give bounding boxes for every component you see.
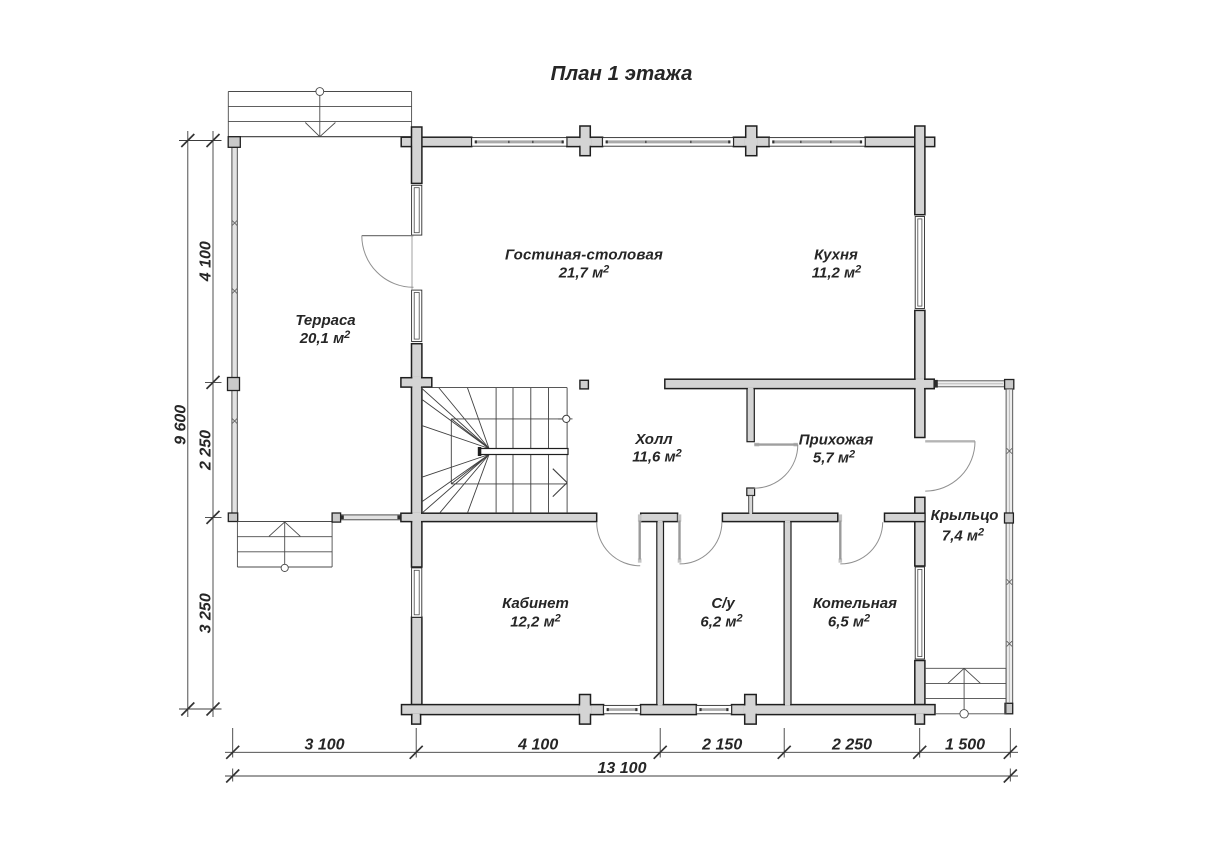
svg-text:12,2 м2: 12,2 м2: [510, 613, 561, 631]
svg-text:Крыльцо: Крыльцо: [931, 507, 999, 524]
svg-text:3 100: 3 100: [304, 737, 344, 754]
svg-text:4 100: 4 100: [197, 241, 214, 282]
svg-text:Прихожая: Прихожая: [799, 432, 874, 449]
svg-text:2 150: 2 150: [701, 737, 742, 754]
svg-text:9 600: 9 600: [172, 405, 189, 445]
svg-text:7,4 м2: 7,4 м2: [942, 527, 984, 545]
svg-text:20,1 м2: 20,1 м2: [299, 329, 351, 347]
svg-text:С/у: С/у: [711, 595, 735, 612]
svg-text:1 500: 1 500: [945, 737, 985, 754]
svg-text:13 100: 13 100: [598, 760, 647, 777]
svg-text:4 100: 4 100: [517, 737, 558, 754]
svg-text:Кабинет: Кабинет: [502, 595, 569, 612]
svg-text:21,7 м2: 21,7 м2: [558, 264, 610, 282]
svg-text:6,5 м2: 6,5 м2: [828, 613, 870, 631]
svg-text:3 250: 3 250: [197, 593, 214, 633]
svg-text:5,7 м2: 5,7 м2: [813, 449, 855, 467]
svg-text:11,6 м2: 11,6 м2: [632, 448, 681, 466]
svg-text:Кухня: Кухня: [814, 247, 858, 264]
svg-text:2 250: 2 250: [197, 430, 214, 471]
svg-text:Терраса: Терраса: [295, 312, 355, 329]
svg-text:Холл: Холл: [634, 431, 673, 448]
svg-text:Гостиная-столовая: Гостиная-столовая: [505, 247, 663, 264]
svg-text:6,2 м2: 6,2 м2: [700, 613, 742, 631]
svg-text:11,2 м2: 11,2 м2: [812, 264, 861, 282]
svg-text:Котельная: Котельная: [813, 595, 897, 612]
svg-text:План 1 этажа: План 1 этажа: [551, 62, 693, 85]
svg-text:2 250: 2 250: [831, 737, 872, 754]
